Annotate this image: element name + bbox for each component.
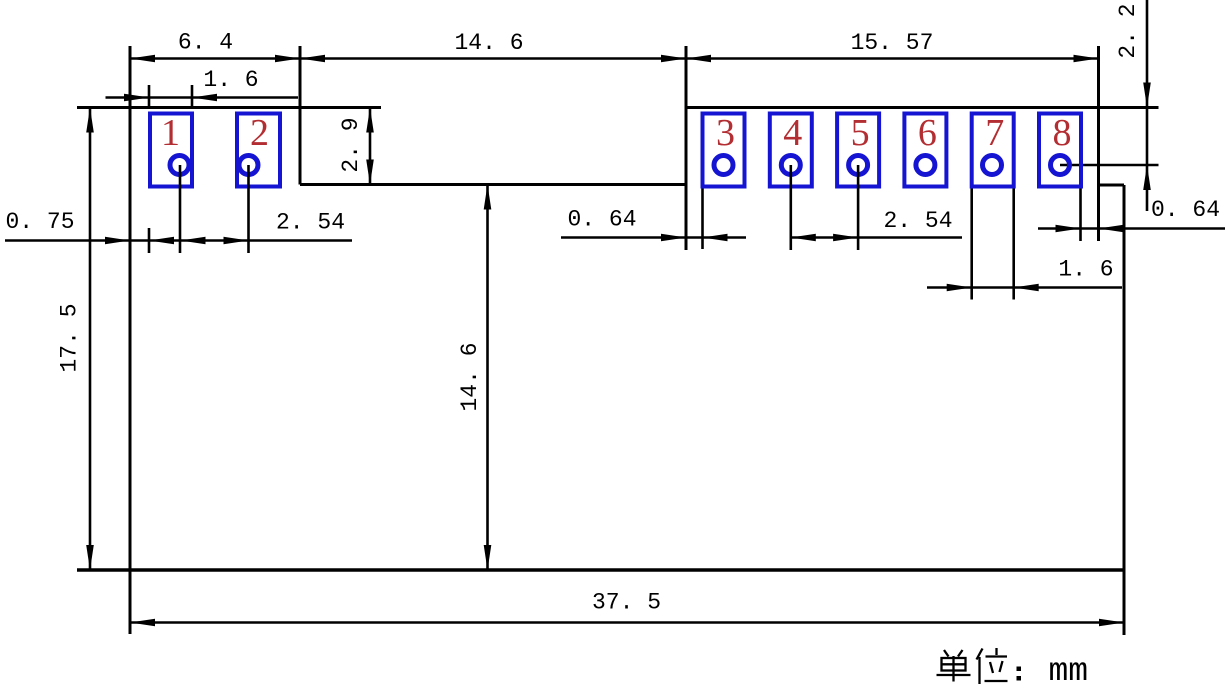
svg-text:4: 4 — [783, 112, 802, 154]
svg-text:6: 6 — [918, 112, 937, 154]
svg-text:0. 64: 0. 64 — [1151, 197, 1220, 223]
svg-text:2. 54: 2. 54 — [276, 209, 345, 235]
svg-text:0. 75: 0. 75 — [5, 209, 74, 235]
svg-text:37. 5: 37. 5 — [592, 590, 661, 616]
svg-text:1. 6: 1. 6 — [203, 67, 258, 93]
svg-text:17. 5: 17. 5 — [57, 303, 83, 372]
svg-text:2. 2: 2. 2 — [1115, 3, 1141, 58]
svg-text:1: 1 — [161, 112, 180, 154]
svg-text:14. 6: 14. 6 — [457, 342, 483, 411]
svg-text:5: 5 — [851, 112, 870, 154]
svg-text:6. 4: 6. 4 — [178, 29, 233, 55]
svg-text:7: 7 — [985, 112, 1004, 154]
svg-text:mm: mm — [1049, 653, 1089, 690]
svg-text:0. 64: 0. 64 — [567, 207, 636, 233]
svg-text:2. 54: 2. 54 — [883, 208, 952, 234]
svg-text:1. 6: 1. 6 — [1058, 257, 1113, 283]
svg-text:2: 2 — [250, 112, 269, 154]
svg-text:15. 57: 15. 57 — [851, 30, 934, 56]
svg-text:3: 3 — [716, 112, 735, 154]
svg-text:14. 6: 14. 6 — [454, 30, 523, 56]
svg-text:8: 8 — [1053, 112, 1072, 154]
svg-text:2. 9: 2. 9 — [338, 117, 364, 172]
